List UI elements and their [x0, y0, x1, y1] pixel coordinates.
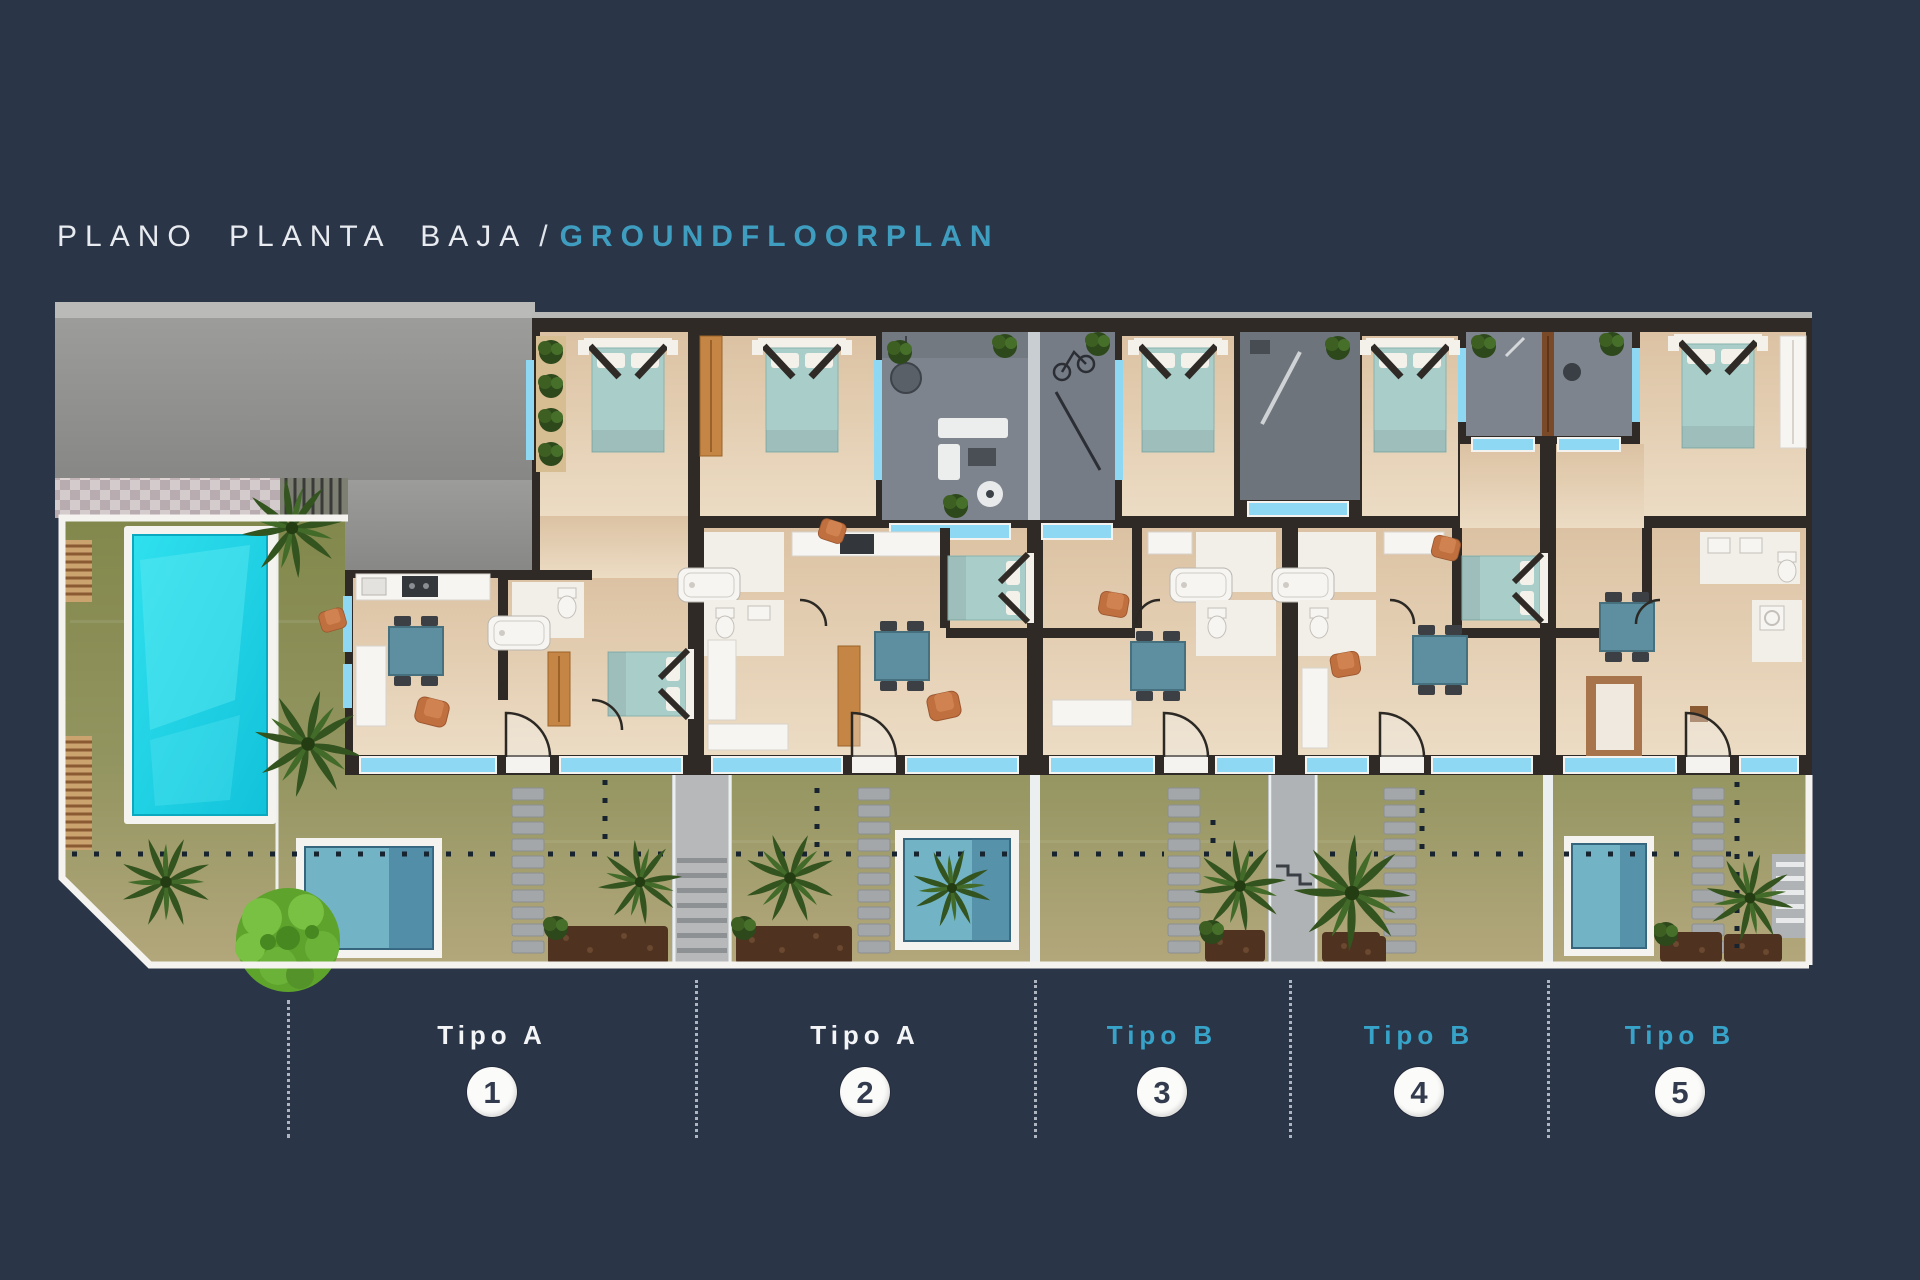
tree — [235, 888, 340, 992]
unit-number-badge: 3 — [1137, 1067, 1187, 1117]
entry-patio-1 — [882, 332, 1115, 520]
unit-label-5: Tipo B 5 — [1590, 1020, 1770, 1117]
unit-number-badge: 5 — [1655, 1067, 1705, 1117]
entry-patio-2 — [1240, 332, 1360, 500]
unit-label-1: Tipo A 1 — [402, 1020, 582, 1117]
entry-patio-3 — [1466, 332, 1632, 436]
unit-number: 3 — [1153, 1077, 1170, 1108]
unit-number: 2 — [856, 1077, 873, 1108]
unit-type: Tipo A — [775, 1020, 955, 1051]
unit-label-2: Tipo A 2 — [775, 1020, 955, 1117]
unit-divider — [695, 980, 698, 1138]
unit-label-3: Tipo B 3 — [1072, 1020, 1252, 1117]
unit-number-badge: 1 — [467, 1067, 517, 1117]
unit-divider — [1547, 980, 1550, 1138]
page: PLANO PLANTA BAJA/GROUNDFLOORPLAN — [0, 0, 1920, 1280]
unit-type: Tipo B — [1072, 1020, 1252, 1051]
unit-type: Tipo B — [1590, 1020, 1770, 1051]
staircase — [672, 775, 732, 965]
unit-number: 1 — [483, 1077, 500, 1108]
unit-number-badge: 4 — [1394, 1067, 1444, 1117]
unit-divider — [1289, 980, 1292, 1138]
unit-number: 4 — [1410, 1077, 1427, 1108]
unit-label-4: Tipo B 4 — [1329, 1020, 1509, 1117]
unit-number-badge: 2 — [840, 1067, 890, 1117]
unit-divider — [1034, 980, 1037, 1138]
side-steps — [1772, 854, 1808, 938]
swimming-pool — [124, 526, 276, 824]
unit-type: Tipo B — [1329, 1020, 1509, 1051]
unit-divider — [287, 1000, 290, 1138]
unit-number: 5 — [1671, 1077, 1688, 1108]
ramp — [1268, 775, 1318, 965]
unit-type: Tipo A — [402, 1020, 582, 1051]
